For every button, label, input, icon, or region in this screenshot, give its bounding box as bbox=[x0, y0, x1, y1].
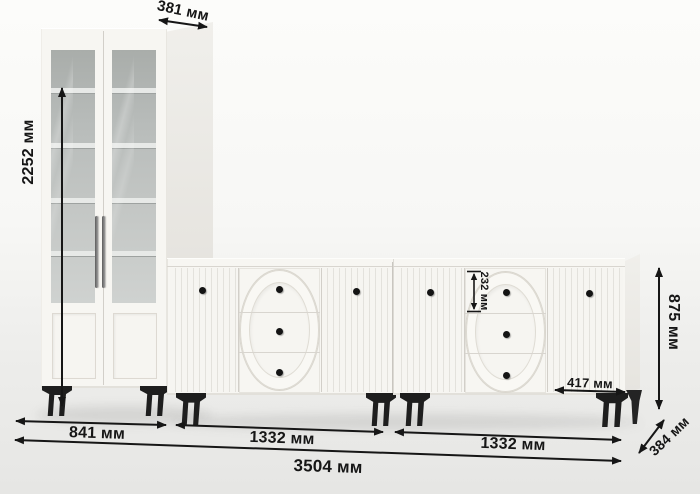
dim-cabinet-height: 2252 мм bbox=[20, 119, 38, 184]
dim-cabinet-width: 841 мм bbox=[69, 424, 126, 444]
dim-sideboard2-width: 1332 мм bbox=[480, 435, 546, 455]
dimension-arrows bbox=[0, 0, 700, 494]
furniture-dimension-diagram: 381 мм 2252 мм 232 мм 417 мм 875 мм 384 … bbox=[0, 0, 700, 494]
dim-total-width: 3504 мм bbox=[293, 456, 363, 478]
dim-sideboard-height: 875 мм bbox=[664, 294, 682, 350]
dim-drawer-height: 232 мм bbox=[478, 272, 490, 311]
dim-sideboard1-width: 1332 мм bbox=[249, 429, 315, 449]
dim-door-width: 417 мм bbox=[567, 375, 613, 392]
